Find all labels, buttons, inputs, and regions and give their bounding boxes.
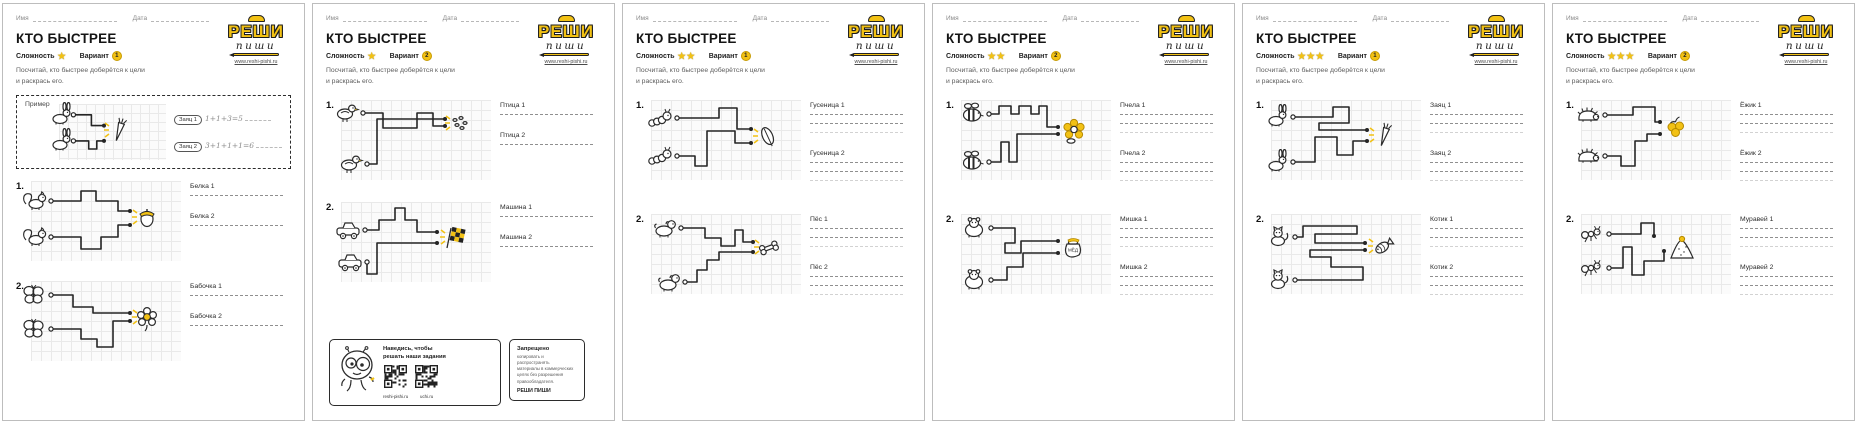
qr-title-line: Наведись, чтобы [383,346,493,354]
reshi-pishi-logo: РЕШИпишиwww.reshi-pishi.ru [531,15,601,65]
example-label: Пример [25,101,50,108]
prohibition-title: Запрещено [517,346,577,352]
answer-label: Бабочка 1 [190,283,291,290]
bird-icon [337,151,364,176]
instruction-line: Посчитай, кто быстрее доберётся к цели [1566,66,1741,77]
answers-gap [1120,141,1221,150]
instruction-line: и раскрась его. [946,77,1121,88]
prohibition-line: правообладателя. [517,379,577,385]
acorn-icon [130,202,161,232]
race-paths [1581,100,1731,180]
task-block: 1.Птица 1Птица 2 [326,100,601,180]
answers-gap [1430,141,1531,150]
answer-label: Пчела 2 [1120,150,1221,157]
variant-badge: 2 [1680,51,1690,61]
answer-continuation-line [256,143,282,148]
honey-icon: МЁД [1058,232,1089,262]
variant-label: Вариант [1338,53,1367,60]
answer-line [1120,246,1213,247]
instruction-line: и раскрась его. [16,77,191,88]
grains-icon [443,108,474,138]
cap-icon [558,15,575,22]
butterfly-icon [21,316,48,341]
answer-line [1120,132,1213,133]
bone-icon [752,232,783,262]
logo-link: www.reshi-pishi.ru [531,59,601,65]
logo-link: www.reshi-pishi.ru [1151,59,1221,65]
logo-word-reshi: РЕШИ [841,23,911,40]
answer-label: Птица 2 [500,132,601,139]
difficulty-label: Сложность [636,53,675,60]
logo-word-pishi: пиши [531,40,601,52]
difficulty-stars: ★★ [988,52,1006,61]
answer-line [500,114,593,115]
date-label: Дата [133,15,147,22]
task-block: 2.Машина 1Машина 2 [326,202,601,282]
race-grid [651,100,801,180]
logo-word-pishi: пиши [841,40,911,52]
answer-line [190,325,283,326]
name-label: Имя [16,15,29,22]
answer-line [1740,228,1833,229]
answer-line [810,123,903,124]
name-label: Имя [636,15,649,22]
name-label: Имя [946,15,959,22]
qr-card: Наведись, чтобырешать наши заданияreshi-… [329,339,501,406]
answer-label: Котик 2 [1430,264,1531,271]
answer-line [1120,276,1213,277]
answer-line [810,171,903,172]
race-grid [1581,100,1731,180]
worksheet-strip: ИмяДатаКТО БЫСТРЕЕСложность★Вариант1Посч… [0,0,1862,426]
racer-badge: Заяц 1 [174,115,202,125]
task-block: 2.Пёс 1Пёс 2 [636,214,911,303]
answer-line [810,285,903,286]
logo-word-reshi: РЕШИ [1151,23,1221,40]
squirrel-icon [21,188,48,213]
anthill-icon [1666,232,1697,262]
difficulty-stars: ★★★ [1608,52,1635,61]
answer-line [1430,237,1523,238]
berries-icon [1660,113,1691,143]
answer-line [1740,162,1833,163]
difficulty-label: Сложность [946,53,985,60]
date-label: Дата [443,15,457,22]
answer-line [1120,228,1213,229]
instruction-text: Посчитай, кто быстрее доберётся к целии … [1256,66,1431,87]
reshi-pishi-logo: РЕШИпишиwww.reshi-pishi.ru [1151,15,1221,65]
task-block: 1.Гусеница 1Гусеница 2 [636,100,911,189]
task-block: 2.Бабочка 1Бабочка 2 [16,281,291,361]
hedgehog-icon [1575,143,1602,168]
variant-badge: 1 [1370,51,1380,61]
brand-line: РЕШИ ПИШИ [517,388,577,394]
date-line [1081,15,1139,22]
answer-line [810,132,903,133]
caterpillar-icon [647,105,674,130]
answers-column: Муравей 1Муравей 2 [1740,214,1841,303]
answer-line [1120,114,1213,115]
hare-icon [1263,149,1290,174]
flower-yellow-icon [1058,115,1089,145]
logo-link: www.reshi-pishi.ru [841,59,911,65]
instruction-text: Посчитай, кто быстрее доберётся к целии … [1566,66,1741,87]
answers-gap [810,141,911,150]
answer-label: Ёжик 1 [1740,102,1841,109]
qr-codes: reshi-pishi.ruuchi.ru [383,365,493,399]
answers-column: Заяц 1Заяц 2 [1430,100,1531,189]
answer-label: Заяц 1 [1430,102,1531,109]
answer-line [500,144,593,145]
carrot-icon [102,115,133,145]
answers-column: Пчела 1Пчела 2 [1120,100,1221,189]
name-label: Имя [1256,15,1269,22]
answer-line [1430,228,1523,229]
answer-line [1430,180,1523,181]
flag-icon [438,222,469,252]
answer-line [1740,246,1833,247]
answer-label: Гусеница 2 [810,150,911,157]
answer-line [1740,132,1833,133]
logo-link: www.reshi-pishi.ru [1461,59,1531,65]
example-grid [59,104,166,160]
dog-icon [655,269,682,294]
reshi-pishi-logo: РЕШИпишиwww.reshi-pishi.ru [221,15,291,65]
race-paths [1271,214,1421,294]
difficulty-label: Сложность [16,53,55,60]
qr-card-content: Наведись, чтобырешать наши заданияreshi-… [383,346,493,399]
worksheet-page: ИмяДатаКТО БЫСТРЕЕСложность★Вариант1Посч… [2,3,305,421]
butterfly-icon [21,282,48,307]
answers-column: Машина 1Машина 2 [500,202,601,282]
instruction-text: Посчитай, кто быстрее доберётся к целии … [946,66,1121,87]
answer-line [810,180,903,181]
answers-gap [1740,141,1841,150]
answer-label: Пёс 2 [810,264,911,271]
task-number: 2. [946,214,961,303]
logo-word-pishi: пиши [1461,40,1531,52]
qr-code [415,365,438,393]
date-label: Дата [1063,15,1077,22]
date-line [771,15,829,22]
example-answers: Заяц 11+1+3=5Заяц 23+1+1+1=6 [174,104,282,162]
race-grid [341,100,491,180]
difficulty-stars: ★★ [678,52,696,61]
worksheet-page: ИмяДатаКТО БЫСТРЕЕСложность★★Вариант2Пос… [932,3,1235,421]
cat-icon [1265,267,1292,292]
race-grid: МЁД [961,214,1111,294]
answer-line [1430,285,1523,286]
race-grid [1581,214,1731,294]
answer-line [1740,180,1833,181]
logo-word-reshi: РЕШИ [1771,23,1841,40]
answer-line [1430,171,1523,172]
worksheet-page: ИмяДатаКТО БЫСТРЕЕСложность★★Вариант1Пос… [622,3,925,421]
answers-gap [500,225,601,234]
instruction-line: и раскрась его. [636,77,811,88]
flower-icon [130,302,161,332]
difficulty-stars: ★ [368,52,377,61]
pencil-icon [853,53,899,56]
answer-label: Котик 1 [1430,216,1531,223]
answer-line [1430,132,1523,133]
date-line [1391,15,1449,22]
instruction-line: Посчитай, кто быстрее доберётся к цели [636,66,811,77]
worksheet-page: ИмяДатаКТО БЫСТРЕЕСложность★★★Вариант2По… [1552,3,1855,421]
race-grid [31,181,181,261]
name-line [1583,15,1667,22]
variant-badge: 2 [1051,51,1061,61]
logo-word-reshi: РЕШИ [531,23,601,40]
date-line [1701,15,1759,22]
answer-line [1740,123,1833,124]
race-grid [651,214,801,294]
answer-line [1430,246,1523,247]
name-line [963,15,1047,22]
logo-word-pishi: пиши [221,40,291,52]
logo-word-reshi: РЕШИ [221,23,291,40]
dog-icon [651,215,678,240]
prohibition-line: копировать и распространять [517,354,577,366]
answer-label: Белка 1 [190,183,291,190]
race-grid [341,202,491,282]
cap-icon [1178,15,1195,22]
date-label: Дата [753,15,767,22]
answer-label: Машина 2 [500,234,601,241]
difficulty-stars: ★ [58,52,67,61]
name-line [653,15,737,22]
qr-code-label: reshi-pishi.ru [383,394,408,399]
task-block: 1.Белка 1Белка 2 [16,181,291,261]
answers-column: Гусеница 1Гусеница 2 [810,100,911,189]
qr-code-block: uchi.ru [415,365,438,399]
pencil-icon [1473,53,1519,56]
fish-icon [1366,231,1397,261]
date-label: Дата [1373,15,1387,22]
race-paths [1271,100,1421,180]
answers-gap [190,204,291,213]
race-grid [31,281,181,361]
bear-icon [961,267,988,292]
answer-label: Гусеница 1 [810,102,911,109]
answer-line [190,195,283,196]
answer-line [1120,285,1213,286]
car-icon [337,249,364,274]
qr-code [383,365,408,393]
answer-line [1430,294,1523,295]
answer-line [1740,294,1833,295]
task-block: 1.Пчела 1Пчела 2 [946,100,1221,189]
answer-line [1740,114,1833,115]
answer-line [1430,162,1523,163]
name-label: Имя [326,15,339,22]
answers-column: Птица 1Птица 2 [500,100,601,180]
answers-column: Пёс 1Пёс 2 [810,214,911,303]
answers-column: Мишка 1Мишка 2 [1120,214,1221,303]
instruction-line: Посчитай, кто быстрее доберётся к цели [946,66,1121,77]
answer-label: Заяц 2 [1430,150,1531,157]
carrot-icon [1367,120,1398,150]
answer-line [1740,171,1833,172]
answer-line [1120,162,1213,163]
hare-icon [1263,104,1290,129]
pencil-icon [1783,53,1829,56]
pencil-icon [543,53,589,56]
instruction-line: Посчитай, кто быстрее доберётся к цели [1256,66,1431,77]
bee-icon [959,101,986,126]
answer-line [810,114,903,115]
qr-code-label: uchi.ru [415,394,438,399]
answer-line [1740,285,1833,286]
footer-cards: Наведись, чтобырешать наши заданияreshi-… [329,339,585,406]
answer-line [810,246,903,247]
answer-label: Бабочка 2 [190,313,291,320]
cap-icon [1798,15,1815,22]
task-block: 1.Ёжик 1Ёжик 2 [1566,100,1841,189]
answer-line [1120,294,1213,295]
answer-line [190,225,283,226]
reshi-pishi-logo: РЕШИпишиwww.reshi-pishi.ru [1461,15,1531,65]
answer-label: Ёжик 2 [1740,150,1841,157]
answer-label: Птица 1 [500,102,601,109]
cap-icon [868,15,885,22]
task-block: 2.МЁДМишка 1Мишка 2 [946,214,1221,303]
answers-column: Котик 1Котик 2 [1430,214,1531,303]
instruction-text: Посчитай, кто быстрее доберётся к целии … [636,66,811,87]
qr-title-line: решать наши задания [383,354,493,362]
answer-line [810,294,903,295]
qr-card-title: Наведись, чтобырешать наши задания [383,346,493,362]
handwritten-equation: 1+1+3=5 [205,114,243,123]
name-label: Имя [1566,15,1579,22]
answers-column: Ёжик 1Ёжик 2 [1740,100,1841,189]
bird-icon [333,100,360,125]
car-icon [335,217,362,242]
race-grid [1271,214,1421,294]
answer-line [1120,123,1213,124]
svg-text:МЁД: МЁД [1068,247,1079,253]
task-block: 1.Заяц 1Заяц 2 [1256,100,1531,189]
difficulty-label: Сложность [326,53,365,60]
caterpillar-icon [647,143,674,168]
reshi-pishi-logo: РЕШИпишиwww.reshi-pishi.ru [841,15,911,65]
answer-line [1120,237,1213,238]
answer-line [1430,276,1523,277]
variant-label: Вариант [1019,53,1048,60]
date-label: Дата [1683,15,1697,22]
answers-gap [1740,255,1841,264]
qr-code-block: reshi-pishi.ru [383,365,408,399]
example-answer-row: Заяц 11+1+3=5 [174,108,282,126]
answer-line [1740,276,1833,277]
cap-icon [1488,15,1505,22]
instruction-text: Посчитай, кто быстрее доберётся к целии … [16,66,191,87]
leaf-icon [751,121,782,151]
instruction-line: и раскрась его. [1566,77,1741,88]
race-grid [1271,100,1421,180]
example-box: ПримерЗаяц 11+1+3=5Заяц 23+1+1+1=6 [16,95,291,169]
handwritten-equation: 3+1+1+1=6 [205,141,254,150]
instruction-text: Посчитай, кто быстрее доберётся к целии … [326,66,501,87]
logo-word-reshi: РЕШИ [1461,23,1531,40]
variant-badge: 1 [741,51,751,61]
name-line [343,15,427,22]
answer-line [500,216,593,217]
answers-column: Белка 1Белка 2 [190,181,291,261]
variant-label: Вариант [80,53,109,60]
answer-line [1120,171,1213,172]
name-line [1273,15,1357,22]
answer-label: Муравей 1 [1740,216,1841,223]
answer-line [810,162,903,163]
answer-line [810,228,903,229]
logo-word-pishi: пиши [1151,40,1221,52]
answer-label: Пёс 1 [810,216,911,223]
answer-continuation-line [245,116,271,121]
answer-label: Белка 2 [190,213,291,220]
task-number: 2. [636,214,651,303]
instruction-line: и раскрась его. [326,77,501,88]
answers-gap [1430,255,1531,264]
variant-label: Вариант [390,53,419,60]
squirrel-icon [21,224,48,249]
answer-line [1430,114,1523,115]
variant-badge: 1 [112,51,122,61]
answer-label: Пчела 1 [1120,102,1221,109]
answers-gap [810,255,911,264]
worksheet-page: ИмяДатаКТО БЫСТРЕЕСложность★Вариант2Посч… [312,3,615,421]
variant-label: Вариант [1648,53,1677,60]
ant-icon [1579,221,1606,246]
logo-link: www.reshi-pishi.ru [1771,59,1841,65]
ant-icon [1579,255,1606,280]
answer-line [810,237,903,238]
difficulty-label: Сложность [1566,53,1605,60]
difficulty-label: Сложность [1256,53,1295,60]
answer-label: Машина 1 [500,204,601,211]
variant-label: Вариант [709,53,738,60]
answer-label: Мишка 1 [1120,216,1221,223]
name-line [33,15,117,22]
pencil-icon [233,53,279,56]
reshi-pishi-logo: РЕШИпишиwww.reshi-pishi.ru [1771,15,1841,65]
answer-line [500,246,593,247]
racer-badge: Заяц 2 [174,142,202,152]
answer-label: Муравей 2 [1740,264,1841,271]
worksheet-page: ИмяДатаКТО БЫСТРЕЕСложность★★★Вариант1По… [1242,3,1545,421]
bear-icon [961,215,988,240]
instruction-line: Посчитай, кто быстрее доберётся к цели [326,66,501,77]
hedgehog-icon [1575,102,1602,127]
answer-line [810,276,903,277]
answer-line [190,295,283,296]
answers-gap [500,123,601,132]
task-block: 2.Котик 1Котик 2 [1256,214,1531,303]
answer-line [1430,123,1523,124]
example-answer-row: Заяц 23+1+1+1=6 [174,135,282,153]
date-line [461,15,519,22]
logo-word-pishi: пиши [1771,40,1841,52]
cap-icon [248,15,265,22]
answer-line [1740,237,1833,238]
difficulty-stars: ★★★ [1298,52,1325,61]
answer-label: Мишка 2 [1120,264,1221,271]
mascot-illustration [337,346,377,399]
instruction-line: Посчитай, кто быстрее доберётся к цели [16,66,191,77]
answers-gap [1120,255,1221,264]
hare-icon [47,128,74,153]
instruction-line: и раскрась его. [1256,77,1431,88]
